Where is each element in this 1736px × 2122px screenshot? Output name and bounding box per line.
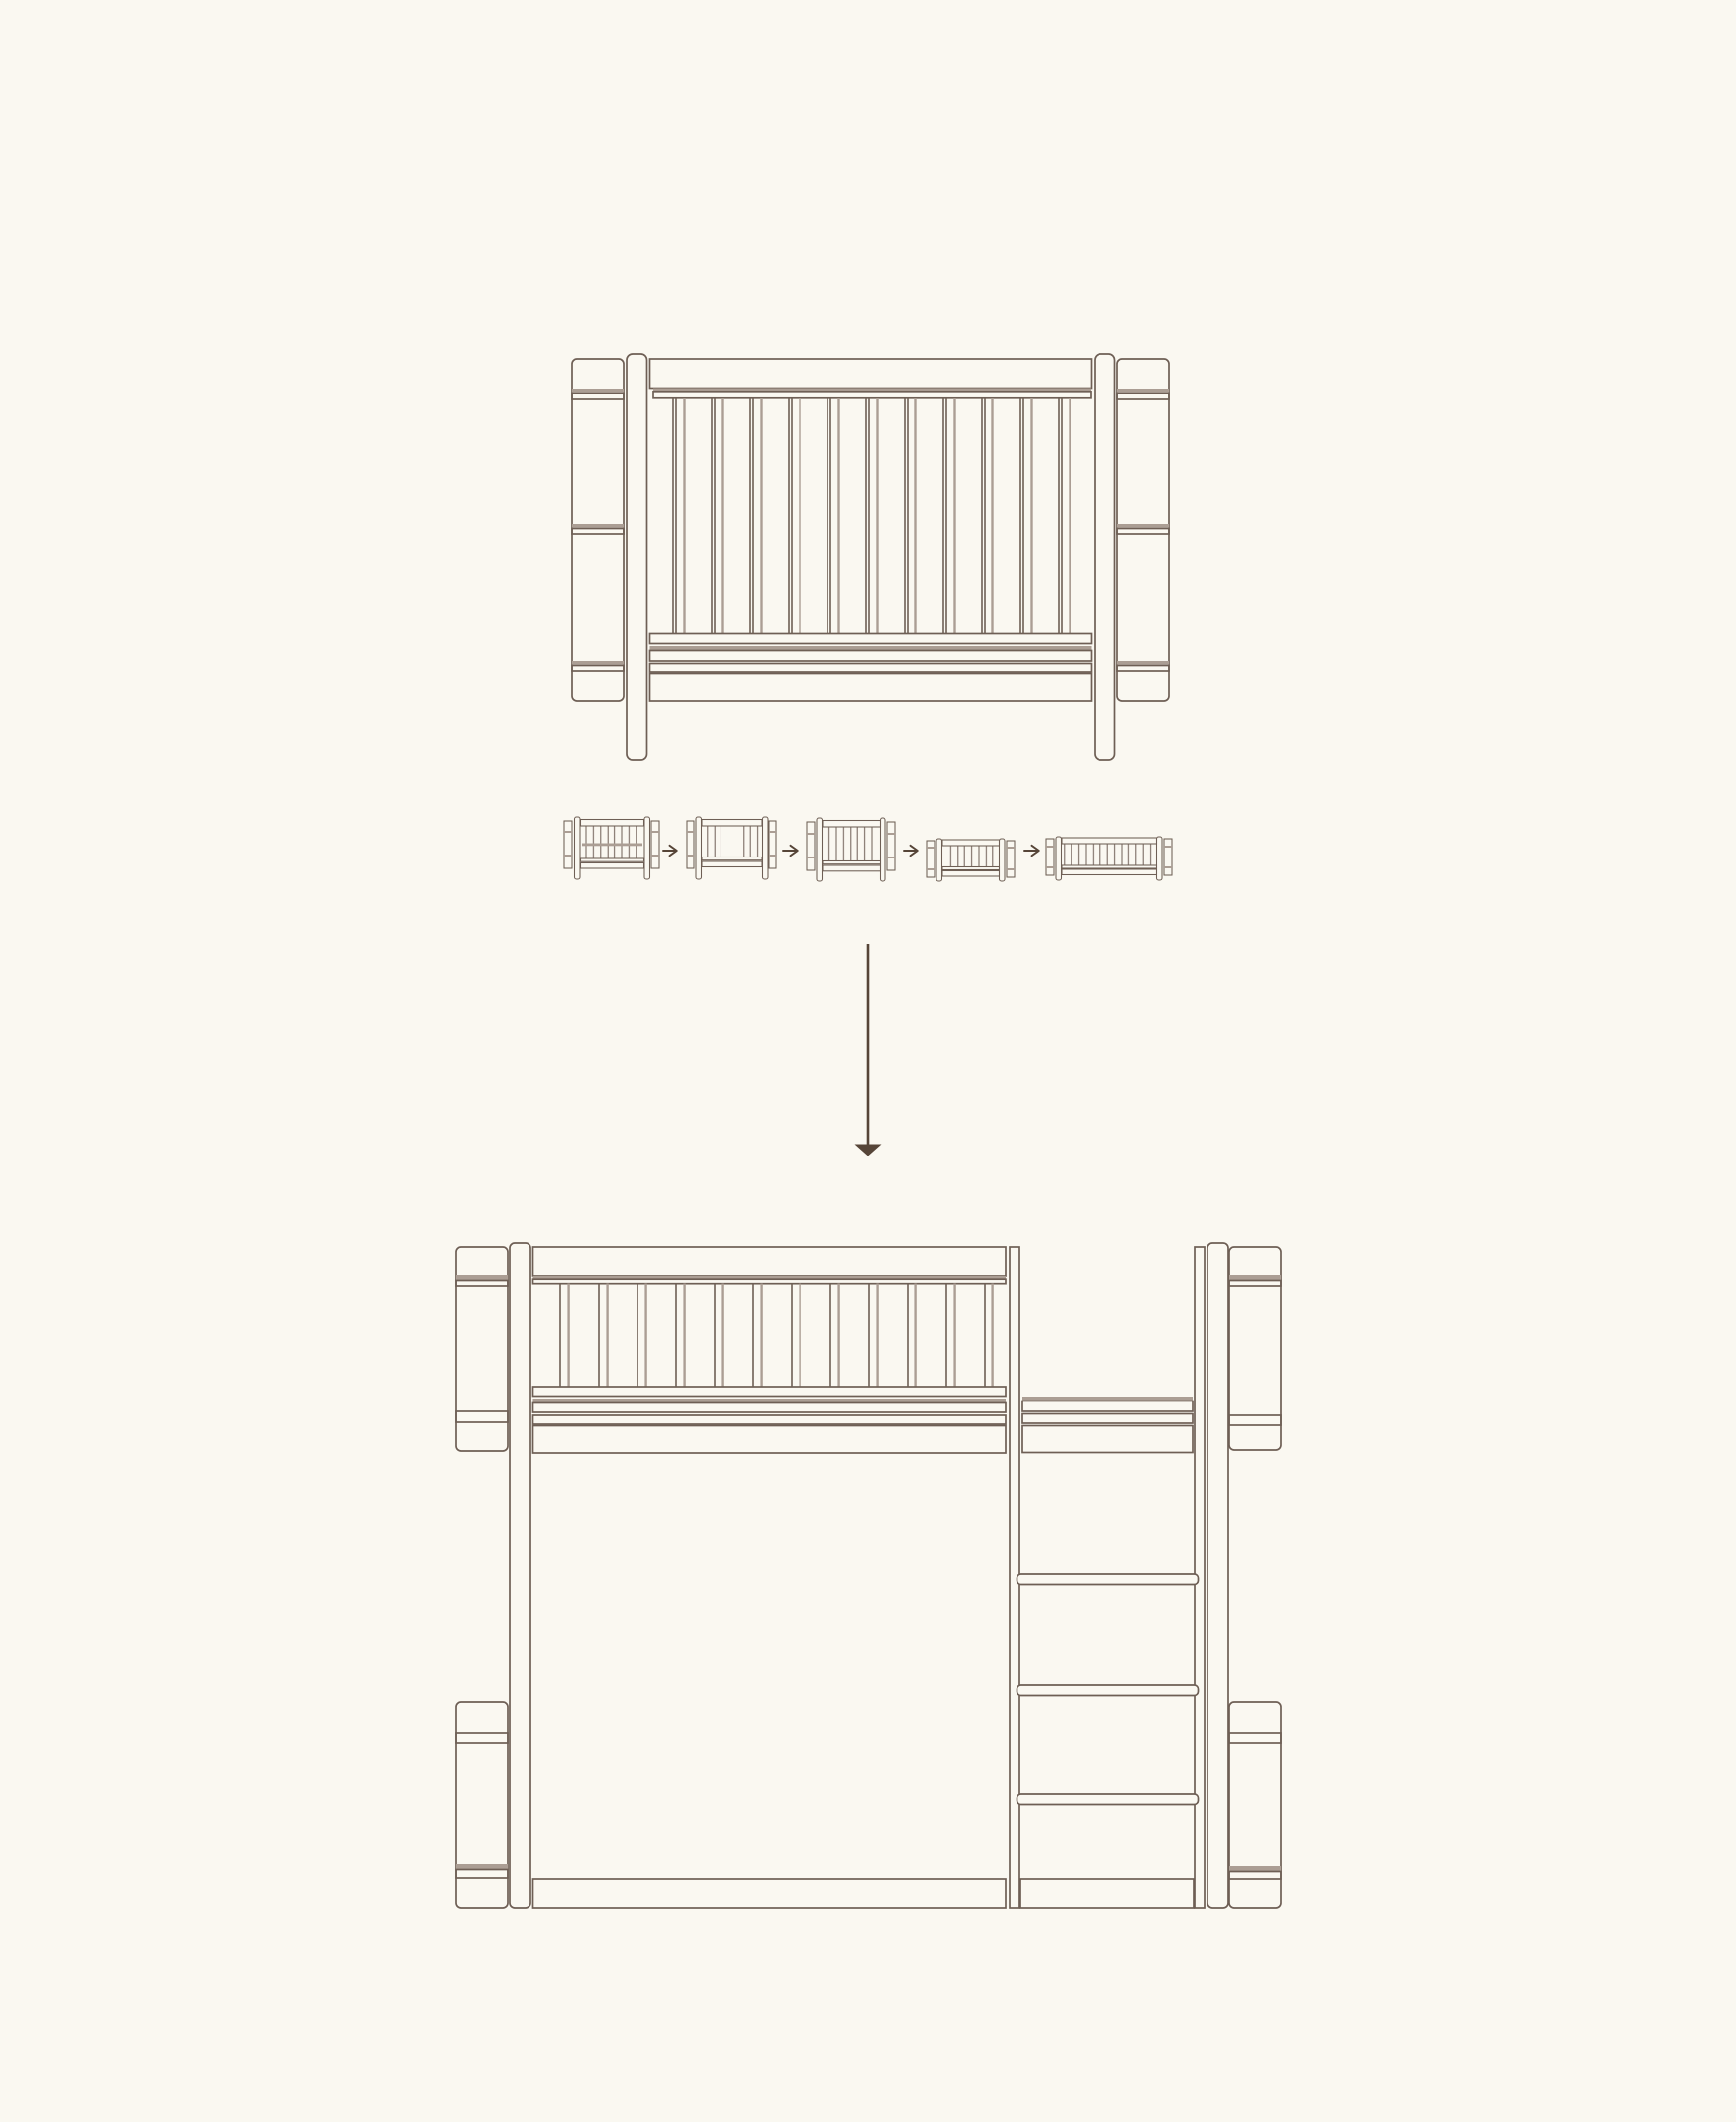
junior-bed-icon bbox=[927, 839, 1015, 881]
loft-platform-rail bbox=[533, 1426, 1007, 1454]
cot-slats bbox=[665, 398, 1082, 634]
cot-top-rail-groove bbox=[653, 392, 1091, 398]
loft-top-rail-groove bbox=[533, 1279, 1007, 1284]
mini-bottom-rail bbox=[942, 871, 1000, 877]
mini-groove bbox=[687, 855, 694, 857]
loft-top-rail bbox=[533, 1247, 1007, 1276]
mini-bottom-rail bbox=[1062, 869, 1157, 875]
right-arrow-icon bbox=[904, 846, 918, 856]
panel-groove bbox=[572, 389, 624, 393]
loft-base-rail bbox=[533, 1403, 1007, 1413]
loft-slat-bottom-rail bbox=[533, 1387, 1007, 1397]
mini-groove bbox=[564, 855, 572, 857]
loft-guardrail-slats bbox=[555, 1284, 1000, 1388]
mini-panel-right bbox=[1007, 841, 1015, 877]
cot-open-side-icon bbox=[687, 817, 776, 879]
mini-leg-right bbox=[763, 817, 769, 879]
mini-top-rail bbox=[581, 820, 644, 827]
panel-groove bbox=[1117, 524, 1169, 528]
mini-base-rail bbox=[823, 861, 881, 864]
panel-groove bbox=[456, 1870, 508, 1879]
loft-bed-figure bbox=[456, 1243, 1281, 1908]
mini-slats bbox=[582, 826, 642, 858]
mini-groove bbox=[651, 855, 659, 857]
mini-groove bbox=[807, 833, 815, 835]
cot-top-rail bbox=[650, 359, 1092, 389]
loft-side-panel-left-lower bbox=[456, 1702, 508, 1908]
cot-side-panel-right bbox=[1117, 359, 1169, 701]
mini-panel-left bbox=[807, 822, 815, 870]
panel-groove bbox=[1229, 1281, 1281, 1287]
cot-bottom-rail bbox=[650, 674, 1092, 702]
loft-side-panel-left-upper bbox=[456, 1247, 508, 1451]
cot-leg-left bbox=[627, 354, 647, 760]
mini-panel-left bbox=[687, 821, 694, 868]
conversion-stages-row bbox=[564, 817, 1172, 881]
panel-groove bbox=[1229, 1733, 1281, 1743]
mini-groove bbox=[927, 847, 935, 849]
mini-top-rail bbox=[1062, 838, 1157, 844]
mini-bottom-rail bbox=[702, 861, 762, 867]
cot-base-groove bbox=[650, 646, 1092, 650]
day-bed-icon bbox=[1046, 837, 1172, 880]
mini-top-rail bbox=[942, 840, 1000, 846]
mini-leg-right bbox=[644, 817, 650, 879]
mini-slats bbox=[1064, 844, 1155, 865]
ladder-rail bbox=[1022, 1414, 1193, 1424]
cot-base-rail bbox=[650, 651, 1092, 662]
loft-side-panel-right-upper bbox=[1229, 1247, 1281, 1450]
mini-leg-right bbox=[1000, 839, 1006, 881]
mini-panel-right bbox=[887, 822, 895, 870]
mini-groove bbox=[1046, 866, 1054, 868]
mini-slats-right-group bbox=[743, 826, 760, 857]
panel-groove bbox=[572, 529, 624, 535]
panel-groove bbox=[456, 1281, 508, 1287]
ladder-rung bbox=[1017, 1685, 1199, 1696]
panel-groove bbox=[456, 1411, 508, 1422]
panel-groove bbox=[1117, 529, 1169, 535]
cot-bed-icon bbox=[807, 818, 895, 881]
ladder-rung bbox=[1017, 1794, 1199, 1805]
illustration-canvas bbox=[0, 0, 1736, 2122]
panel-groove bbox=[1117, 661, 1169, 665]
cot-base-rails bbox=[650, 634, 1092, 702]
cot-leg-right bbox=[1095, 354, 1115, 760]
loft-base-rail bbox=[533, 1415, 1007, 1424]
panel-groove bbox=[1229, 1415, 1281, 1425]
mini-bottom-rail bbox=[823, 865, 881, 871]
mini-groove bbox=[769, 831, 776, 833]
panel-groove bbox=[572, 394, 624, 400]
mini-slats bbox=[944, 846, 998, 866]
mini-groove bbox=[564, 831, 572, 833]
mini-bottom-rail bbox=[581, 863, 644, 869]
panel-groove bbox=[1229, 1275, 1281, 1280]
ladder-rung bbox=[1017, 1574, 1199, 1585]
ladder-rail bbox=[1022, 1401, 1193, 1412]
mini-panel-left bbox=[564, 821, 572, 868]
mini-leg-left bbox=[817, 818, 823, 881]
panel-groove bbox=[1117, 389, 1169, 393]
mini-groove bbox=[769, 855, 776, 857]
right-arrow-icon bbox=[663, 846, 677, 856]
mini-leg-left bbox=[1056, 837, 1062, 880]
mini-groove bbox=[887, 833, 895, 835]
mini-leg-left bbox=[936, 839, 942, 881]
ladder-platform bbox=[1022, 1426, 1193, 1453]
mini-top-rail bbox=[823, 821, 881, 828]
mini-groove bbox=[687, 831, 694, 833]
mini-groove bbox=[1007, 847, 1015, 849]
panel-groove bbox=[572, 661, 624, 665]
mini-leg-right bbox=[1157, 837, 1163, 880]
mini-panel-right bbox=[769, 821, 776, 868]
ladder-groove bbox=[1022, 1397, 1193, 1401]
panel-groove bbox=[456, 1733, 508, 1743]
mini-groove bbox=[1007, 868, 1015, 870]
mini-panel-left bbox=[927, 841, 935, 877]
mini-groove bbox=[887, 857, 895, 858]
loft-post-right bbox=[1207, 1243, 1228, 1908]
panel-outline bbox=[1117, 359, 1169, 701]
mini-groove bbox=[1046, 846, 1054, 848]
cot-side-panel-left bbox=[572, 359, 624, 701]
loft-bottom-rail bbox=[533, 1879, 1007, 1908]
cot-full-slats-icon bbox=[564, 817, 659, 879]
mini-groove bbox=[927, 868, 935, 870]
mini-leg-right bbox=[881, 818, 886, 881]
loft-bed-base-rails bbox=[533, 1387, 1007, 1453]
mini-panel-left bbox=[1046, 839, 1054, 875]
ladder-bottom-rail bbox=[1020, 1879, 1194, 1908]
loft-post-left bbox=[510, 1243, 530, 1908]
mini-leg-left bbox=[696, 817, 702, 879]
panel-groove bbox=[572, 666, 624, 672]
mini-groove bbox=[1164, 866, 1172, 868]
right-arrow-icon bbox=[783, 846, 798, 856]
panel-groove bbox=[1229, 1872, 1281, 1880]
panel-groove bbox=[572, 524, 624, 528]
loft-base-groove bbox=[533, 1399, 1007, 1402]
right-arrow-icon bbox=[1024, 846, 1039, 856]
cot-slat-bottom-rail bbox=[650, 634, 1092, 644]
ladder-platform-rails bbox=[1022, 1397, 1193, 1453]
mini-base-rail bbox=[1062, 865, 1157, 868]
cot-base-rail bbox=[650, 664, 1092, 673]
bed-conversion-diagram bbox=[0, 0, 1736, 2122]
mini-slats-left-group bbox=[704, 826, 721, 857]
cot-figure bbox=[572, 354, 1169, 760]
panel-groove bbox=[1117, 394, 1169, 400]
mini-groove bbox=[1164, 846, 1172, 848]
panel-groove bbox=[456, 1275, 508, 1280]
mini-groove bbox=[651, 831, 659, 833]
mini-mattress-line bbox=[582, 844, 642, 847]
down-arrow-icon bbox=[855, 944, 882, 1156]
mini-leg-left bbox=[575, 817, 581, 879]
panel-groove bbox=[1229, 1866, 1281, 1871]
mini-panel-right bbox=[651, 821, 659, 868]
mini-groove bbox=[807, 857, 815, 858]
mini-panel-right bbox=[1164, 839, 1172, 875]
mini-top-rail bbox=[702, 820, 762, 827]
panel-groove bbox=[456, 1864, 508, 1869]
mini-base-rail bbox=[702, 857, 762, 860]
panel-groove bbox=[1117, 666, 1169, 672]
mini-slats bbox=[825, 827, 879, 860]
mini-base-rail bbox=[581, 858, 644, 861]
panel-outline bbox=[572, 359, 624, 701]
mini-base-rail bbox=[942, 867, 1000, 870]
loft-side-panel-right-lower bbox=[1229, 1702, 1281, 1908]
